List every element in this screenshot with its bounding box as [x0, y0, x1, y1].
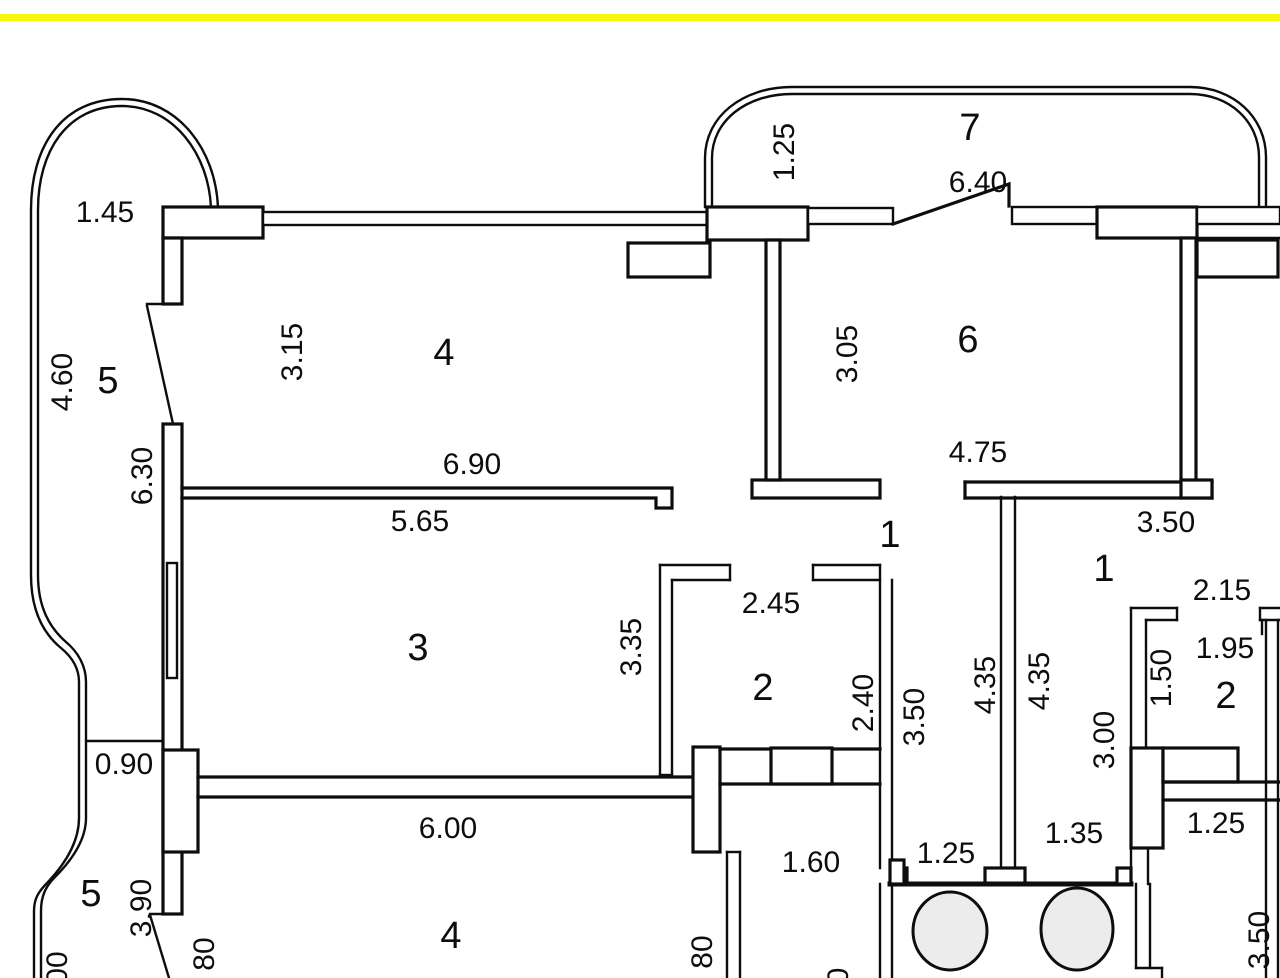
dimension-label: 1.95	[1196, 632, 1254, 665]
wall-block-right	[1197, 240, 1278, 277]
dimension-label: 3.50	[1137, 506, 1195, 539]
dimension-label: 3.15	[276, 323, 309, 381]
dimension-label: 1.60	[782, 846, 840, 879]
floor-plan-page: 54763112254 1.454.603.156.306.905.651.25…	[0, 0, 1280, 978]
dimension-label: 0.90	[95, 748, 153, 781]
washbasin-fixture	[913, 892, 987, 970]
fixtures-layer	[913, 888, 1113, 970]
dimension-label: 1.45	[76, 196, 134, 229]
room-number-label: 1	[1093, 548, 1114, 590]
room-number-label: 1	[879, 514, 900, 556]
dimension-label: 6.40	[949, 166, 1007, 199]
dimension-label: 4.35	[1023, 652, 1056, 710]
left-exterior-wall	[87, 238, 198, 978]
toilet-fixture	[1041, 888, 1113, 970]
dimension-label: 3.50	[1243, 911, 1276, 969]
wall-bottom-center	[727, 852, 740, 978]
dimension-label: 80	[188, 937, 221, 970]
dimension-label: 1.25	[768, 123, 801, 181]
wall-room3-bottom	[198, 747, 880, 852]
dimension-label: 0	[822, 968, 855, 978]
dimension-label: 3.00	[1088, 711, 1121, 769]
room-number-label: 3	[407, 627, 428, 669]
dimension-label: 80	[686, 935, 719, 968]
dimension-label: 2.15	[1193, 574, 1251, 607]
room-number-label: 2	[752, 667, 773, 709]
room-number-label: 4	[433, 332, 454, 374]
dimension-label: 4.75	[949, 436, 1007, 469]
dimension-label: 6.00	[419, 812, 477, 845]
dimension-label: 3.35	[615, 618, 648, 676]
dimension-label: 2.45	[742, 587, 800, 620]
dimension-label: 00	[41, 951, 74, 978]
room-number-label: 6	[957, 319, 978, 361]
dimension-label: 2.40	[847, 674, 880, 732]
dimension-label: 1.25	[917, 837, 975, 870]
room-number-label: 2	[1215, 675, 1236, 717]
dimension-label: 6.90	[443, 448, 501, 481]
room-number-label: 4	[440, 915, 461, 957]
top-highlight-bar	[0, 14, 1280, 21]
room-number-label: 5	[97, 360, 118, 402]
room-number-label: 5	[80, 873, 101, 915]
dimension-label: 3.90	[125, 879, 158, 937]
dimension-label: 4.35	[969, 656, 1002, 714]
top-exterior-wall	[163, 184, 1280, 240]
dimension-label: 1.50	[1145, 649, 1178, 707]
dimension-label: 1.25	[1187, 807, 1245, 840]
dimension-label: 3.05	[831, 325, 864, 383]
room-number-label: 7	[959, 107, 980, 149]
dimension-label: 6.30	[126, 447, 159, 505]
dimension-label: 3.50	[898, 688, 931, 746]
wall-block-left	[628, 243, 710, 277]
dimension-label: 4.60	[46, 353, 79, 411]
dimension-label: 5.65	[391, 505, 449, 538]
dimension-label: 1.35	[1045, 817, 1103, 850]
floor-plan-drawing: 54763112254 1.454.603.156.306.905.651.25…	[0, 0, 1280, 978]
